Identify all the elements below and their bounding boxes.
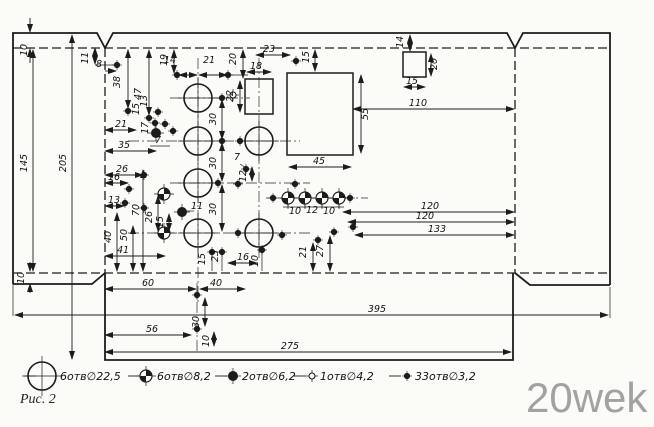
dim-label: 40 — [210, 278, 222, 289]
dim-label: 13 — [108, 195, 120, 206]
dim-label: 14 — [395, 36, 406, 48]
dim-label: 145 — [19, 154, 30, 172]
hole-d82 — [140, 376, 146, 382]
hole-d32 — [347, 195, 352, 200]
watermark: 20wek — [526, 374, 647, 422]
dim-label: 7 — [234, 152, 240, 163]
hole-d32 — [141, 205, 146, 210]
dim-label: 120 — [416, 211, 434, 222]
hole-d82 — [339, 192, 345, 198]
hole-d32 — [235, 230, 240, 235]
hole-d82 — [164, 188, 170, 194]
dim-label: 30 — [208, 157, 219, 169]
dim-label: 40 — [103, 231, 114, 243]
hole-d82 — [316, 198, 322, 204]
hole-d32 — [122, 200, 127, 205]
dim-label: 55 — [360, 108, 371, 120]
hole-d32 — [292, 181, 297, 186]
dim-label: 16 — [237, 252, 249, 263]
hole-d32 — [237, 138, 242, 143]
rectangular-hole — [287, 73, 353, 155]
hole-d32 — [125, 108, 130, 113]
legend-label: 6отв∅8,2 — [157, 370, 211, 383]
hole-d82 — [299, 198, 305, 204]
hole-d82 — [146, 370, 152, 376]
dim-label: 27 — [315, 245, 326, 257]
hole-d32 — [315, 237, 320, 242]
dim-label: 14 — [164, 55, 176, 66]
dim-label: 20 — [228, 53, 239, 65]
legend-label: 33отв∅3,2 — [415, 370, 476, 383]
hole-d32 — [152, 120, 157, 125]
hole-d32 — [219, 138, 224, 143]
hole-d82 — [333, 198, 339, 204]
dim-label: 395 — [368, 304, 386, 315]
dim-label: 41 — [117, 245, 129, 256]
centerlines — [128, 58, 368, 352]
dim-label: 15 — [197, 253, 208, 265]
dim-label: 17 — [140, 122, 151, 134]
dim-label: 38 — [112, 76, 123, 88]
legend-label: 2отв∅6,2 — [242, 370, 296, 383]
dim-label: 11 — [80, 52, 91, 64]
hole-d32 — [404, 373, 409, 378]
technical-drawing: 1011838471914211315177213526161340504170… — [0, 0, 654, 427]
hole-d32 — [350, 224, 355, 229]
dim-label: 10 — [323, 206, 335, 217]
legend-layer: 6отв∅22,56отв∅8,22отв∅6,21отв∅4,233отв∅3… — [22, 356, 476, 396]
hole-d62 — [229, 372, 238, 381]
hole-d32 — [259, 247, 264, 252]
dim-label: 10 — [250, 255, 261, 267]
dim-label: 20 — [429, 58, 440, 70]
dim-label: 21 — [115, 119, 127, 130]
hole-d32 — [162, 121, 167, 126]
dim-label: 45 — [313, 156, 325, 167]
dim-label: 35 — [118, 140, 130, 151]
dim-label: 16 — [108, 172, 120, 183]
dim-label: 15 — [131, 103, 142, 115]
dim-label: 11 — [191, 201, 203, 212]
hole-d32 — [114, 62, 119, 67]
dim-label: 18 — [250, 61, 262, 72]
dim-label: 12 — [306, 205, 318, 216]
dim-label: 205 — [58, 154, 69, 172]
hole-d32 — [174, 72, 179, 77]
dim-label: 10 — [201, 335, 212, 347]
hole-d32 — [155, 109, 160, 114]
hole-d32 — [293, 58, 298, 63]
dim-label: 50 — [119, 229, 130, 241]
dim-label: 26 — [144, 211, 155, 223]
hole-d82 — [322, 192, 328, 198]
hole-d82 — [158, 194, 164, 200]
dim-label: 275 — [281, 341, 299, 352]
dimension-lines — [13, 18, 610, 359]
dim-label: 30 — [191, 316, 202, 328]
hole-d32 — [170, 128, 175, 133]
dim-label: 133 — [428, 224, 446, 235]
hole-d42 — [309, 373, 315, 379]
hole-d32 — [141, 172, 146, 177]
hole-d32 — [194, 292, 199, 297]
dim-label: 60 — [142, 278, 154, 289]
dim-label: 23 — [210, 250, 221, 262]
dim-label: 30 — [208, 113, 219, 125]
dim-label: 8 — [96, 59, 102, 70]
dim-label: 7 — [155, 135, 161, 146]
hole-d62 — [178, 208, 187, 217]
hole-d82 — [158, 233, 164, 239]
hole-d82 — [282, 198, 288, 204]
hole-d32 — [270, 195, 275, 200]
dim-label: 10 — [19, 44, 30, 56]
hole-d32 — [219, 95, 224, 100]
dim-label: 21 — [298, 246, 309, 258]
dim-label: 70 — [131, 204, 142, 216]
hole-d32 — [126, 186, 131, 191]
hole-d32 — [279, 232, 284, 237]
hole-d32 — [146, 115, 151, 120]
dim-label: 10 — [16, 272, 27, 284]
dim-label: 10 — [289, 206, 301, 217]
dim-label: 15 — [155, 216, 166, 228]
dimension-labels-layer: 1011838471914211315177213526161340504170… — [16, 36, 446, 352]
hole-d82 — [288, 192, 294, 198]
legend-label: 6отв∅22,5 — [60, 370, 121, 383]
dim-label: 23 — [263, 44, 275, 55]
hole-d32 — [215, 180, 220, 185]
dim-label: 15 — [301, 51, 312, 63]
hole-d32 — [225, 72, 230, 77]
dim-label: 30 — [208, 203, 219, 215]
dim-label: 22 — [225, 90, 236, 102]
dim-label: 15 — [406, 76, 418, 87]
rectangular-hole — [403, 52, 426, 77]
chassis-outline — [13, 33, 610, 360]
hole-d32 — [331, 229, 336, 234]
dim-label: 12 — [238, 170, 249, 182]
scanned-drawing-page: 1011838471914211315177213526161340504170… — [0, 0, 654, 427]
figure-caption: Рис. 2 — [20, 392, 56, 408]
hole-d82 — [305, 192, 311, 198]
dim-label: 21 — [203, 55, 215, 66]
legend-label: 1отв∅4,2 — [320, 370, 374, 383]
dim-label: 56 — [146, 324, 158, 335]
dim-label: 110 — [409, 98, 427, 109]
